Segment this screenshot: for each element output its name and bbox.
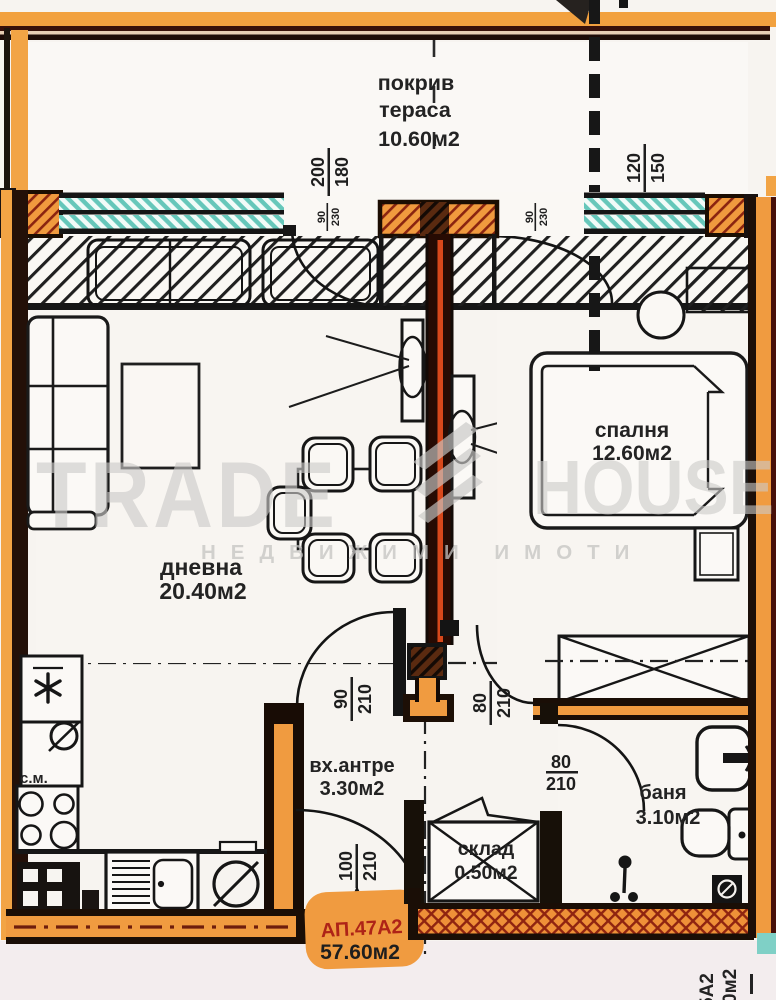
svg-text:210: 210: [360, 851, 380, 881]
svg-text:0.50м2: 0.50м2: [454, 862, 517, 884]
svg-text:5А2: 5А2: [697, 973, 718, 1000]
svg-text:HOUSE: HOUSE: [533, 445, 774, 531]
svg-text:90: 90: [331, 689, 351, 709]
svg-text:TRADE: TRADE: [36, 442, 338, 547]
svg-text:тераса: тераса: [379, 98, 452, 122]
svg-text:90: 90: [524, 211, 536, 223]
svg-text:20.40м2: 20.40м2: [159, 578, 246, 604]
svg-text:покрив: покрив: [378, 71, 454, 95]
svg-text:вх.антре: вх.антре: [309, 755, 394, 777]
svg-text:НЕДВИЖИМИ ИМОТИ: НЕДВИЖИМИ ИМОТИ: [201, 541, 644, 564]
svg-text:100: 100: [336, 851, 356, 881]
svg-text:0м2: 0м2: [720, 969, 741, 1000]
svg-text:200: 200: [308, 157, 328, 187]
svg-text:230: 230: [330, 208, 342, 226]
svg-text:210: 210: [546, 774, 576, 794]
svg-text:3.30м2: 3.30м2: [320, 778, 385, 800]
svg-text:150: 150: [648, 153, 668, 183]
svg-text:3.10м2: 3.10м2: [636, 807, 701, 829]
svg-text:210: 210: [494, 688, 514, 718]
svg-text:склад: склад: [458, 838, 515, 860]
svg-text:180: 180: [332, 157, 352, 187]
svg-text:230: 230: [538, 208, 550, 226]
svg-text:с.м.: с.м.: [20, 770, 48, 787]
svg-text:90: 90: [316, 211, 328, 223]
svg-text:АП.47А2: АП.47А2: [320, 916, 403, 942]
svg-text:10.60м2: 10.60м2: [378, 127, 460, 151]
svg-text:80: 80: [551, 752, 571, 772]
svg-text:баня: баня: [639, 782, 686, 804]
svg-text:57.60м2: 57.60м2: [320, 941, 400, 964]
svg-text:210: 210: [355, 684, 375, 714]
svg-text:80: 80: [470, 693, 490, 713]
svg-text:120: 120: [624, 153, 644, 183]
svg-text:спалня: спалня: [595, 419, 669, 442]
